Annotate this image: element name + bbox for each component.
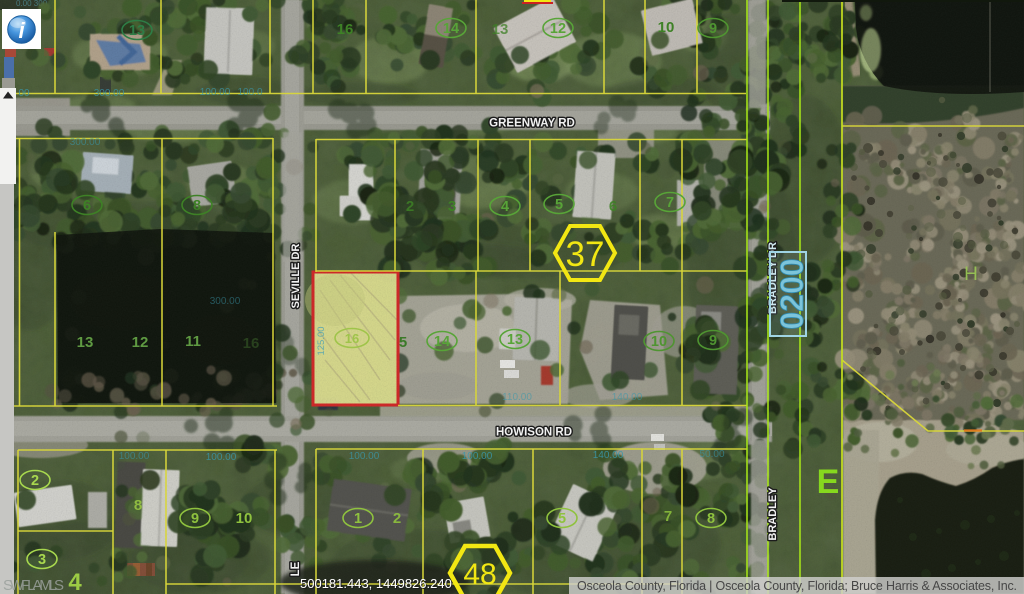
svg-text:14: 14 <box>443 21 459 37</box>
svg-text:2: 2 <box>31 473 39 489</box>
svg-text:100.00: 100.00 <box>349 451 380 462</box>
svg-text:16: 16 <box>337 21 354 38</box>
svg-text:E: E <box>817 463 840 501</box>
svg-text:100.0: 100.0 <box>237 87 262 98</box>
svg-text:GREENWAY RD: GREENWAY RD <box>489 118 575 130</box>
svg-text:125.00: 125.00 <box>316 326 327 355</box>
svg-text:13: 13 <box>507 332 523 348</box>
svg-text:50.00: 50.00 <box>699 449 724 460</box>
svg-text:10: 10 <box>651 334 667 350</box>
svg-text:i: i <box>18 18 25 43</box>
svg-text:14: 14 <box>434 334 450 350</box>
svg-text:5: 5 <box>399 334 407 351</box>
svg-text:140.00: 140.00 <box>593 450 624 461</box>
svg-text:4: 4 <box>68 569 82 594</box>
svg-text:00: 00 <box>18 88 30 99</box>
svg-text:2: 2 <box>393 510 401 527</box>
svg-text:9: 9 <box>709 333 717 349</box>
svg-text:1: 1 <box>354 511 362 527</box>
svg-text:100.00: 100.00 <box>206 452 237 463</box>
svg-text:5: 5 <box>555 197 563 213</box>
svg-text:SWFLAMLS: SWFLAMLS <box>3 577 64 594</box>
svg-text:12: 12 <box>550 21 566 37</box>
svg-text:48: 48 <box>463 558 496 591</box>
svg-text:4: 4 <box>501 199 509 215</box>
svg-text:13: 13 <box>77 334 94 351</box>
svg-text:LE: LE <box>290 561 302 576</box>
svg-text:5: 5 <box>558 511 566 527</box>
svg-text:BRADLEY: BRADLEY <box>767 487 779 541</box>
svg-text:8: 8 <box>193 198 201 214</box>
svg-text:2: 2 <box>406 198 414 215</box>
svg-text:SEVILLE DR: SEVILLE DR <box>290 244 302 309</box>
svg-text:Osceola County, Florida | Osce: Osceola County, Florida | Osceola County… <box>577 579 1017 593</box>
svg-text:10: 10 <box>236 510 253 527</box>
svg-text:37: 37 <box>566 235 605 274</box>
svg-text:13: 13 <box>129 23 145 39</box>
svg-text:140.00: 140.00 <box>612 392 643 403</box>
svg-text:H: H <box>964 264 978 285</box>
svg-text:100.00: 100.00 <box>462 451 493 462</box>
svg-text:3: 3 <box>38 552 46 568</box>
svg-text:100.00: 100.00 <box>119 451 150 462</box>
svg-text:13: 13 <box>492 21 509 38</box>
svg-text:11: 11 <box>185 333 201 350</box>
svg-text:300.00: 300.00 <box>70 137 101 148</box>
svg-text:12: 12 <box>132 334 149 351</box>
svg-text:100.00: 100.00 <box>200 87 231 98</box>
svg-text:10: 10 <box>658 19 675 36</box>
svg-text:300.00: 300.00 <box>94 88 125 99</box>
svg-text:16: 16 <box>345 331 359 346</box>
svg-text:9: 9 <box>191 511 199 527</box>
svg-text:0200: 0200 <box>774 258 810 329</box>
svg-text:8: 8 <box>707 511 715 527</box>
svg-text:HOWISON RD: HOWISON RD <box>496 427 572 439</box>
svg-text:7: 7 <box>664 508 672 525</box>
svg-text:6: 6 <box>609 198 617 215</box>
svg-text:9: 9 <box>709 21 717 37</box>
svg-text:300.00: 300.00 <box>210 296 241 307</box>
svg-text:6: 6 <box>83 198 91 214</box>
svg-text:8: 8 <box>134 497 142 514</box>
svg-text:16: 16 <box>243 335 260 352</box>
svg-text:500181.443, 1449826.240: 500181.443, 1449826.240 <box>300 576 452 591</box>
svg-text:3: 3 <box>448 198 456 215</box>
svg-text:110.00: 110.00 <box>502 392 532 403</box>
svg-text:7: 7 <box>666 195 674 211</box>
